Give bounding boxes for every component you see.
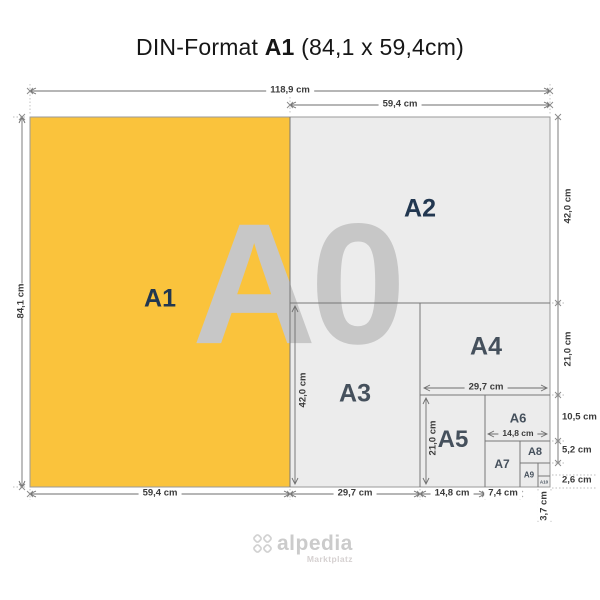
logo: alpedia Marktplatz: [251, 532, 353, 564]
dim-right-a4-height: 21,0 cm: [564, 332, 575, 367]
dim-bottom-a5-width: 14,8 cm: [431, 489, 474, 500]
dim-bottom-a7-width: 7,4 cm: [484, 489, 522, 500]
dim-bottom-a1-width: 59,4 cm: [139, 489, 182, 500]
sheet-a6-label: A6: [510, 411, 527, 426]
logo-tagline: Marktplatz: [307, 554, 353, 564]
dim-inner-a6-width: 14,8 cm: [498, 429, 537, 439]
sheet-a1-label: A1: [144, 285, 176, 314]
sheet-a4-label: A4: [470, 333, 502, 362]
dim-inner-a4-width: 29,7 cm: [465, 383, 508, 394]
sheet-a3-label: A3: [339, 380, 371, 409]
sheet-borders: [30, 117, 550, 487]
dim-right-a10-height: 2,6 cm: [562, 476, 592, 487]
dim-bottom-a10-width: 3,7 cm: [538, 491, 553, 521]
sheet-a9-label: A9: [524, 471, 534, 480]
dim-right-a6-height: 10,5 cm: [562, 413, 597, 424]
dim-right-a8-height: 5,2 cm: [562, 446, 592, 457]
dim-bottom-a3-width: 29,7 cm: [334, 489, 377, 500]
dim-right-a2-height: 42,0 cm: [564, 189, 575, 224]
sheet-a8-label: A8: [528, 446, 542, 458]
dim-inner-a3-height: 42,0 cm: [299, 373, 310, 408]
dim-top-right-width: 59,4 cm: [379, 100, 422, 111]
dim-left-height: 84,1 cm: [15, 284, 30, 319]
alpedia-clover-icon: [251, 532, 274, 555]
logo-name: alpedia: [277, 532, 353, 555]
sheet-a2-label: A2: [404, 195, 436, 224]
sheet-a7-label: A7: [494, 457, 509, 471]
din-format-infographic: DIN-Format A1 (84,1 x 59,4cm) A0: [0, 0, 600, 600]
dim-inner-a5-height: 21,0 cm: [429, 421, 440, 456]
dim-top-total-width: 118,9 cm: [266, 86, 314, 97]
sheet-a10-label: A10: [540, 479, 548, 484]
sheet-a5-label: A5: [438, 426, 469, 454]
